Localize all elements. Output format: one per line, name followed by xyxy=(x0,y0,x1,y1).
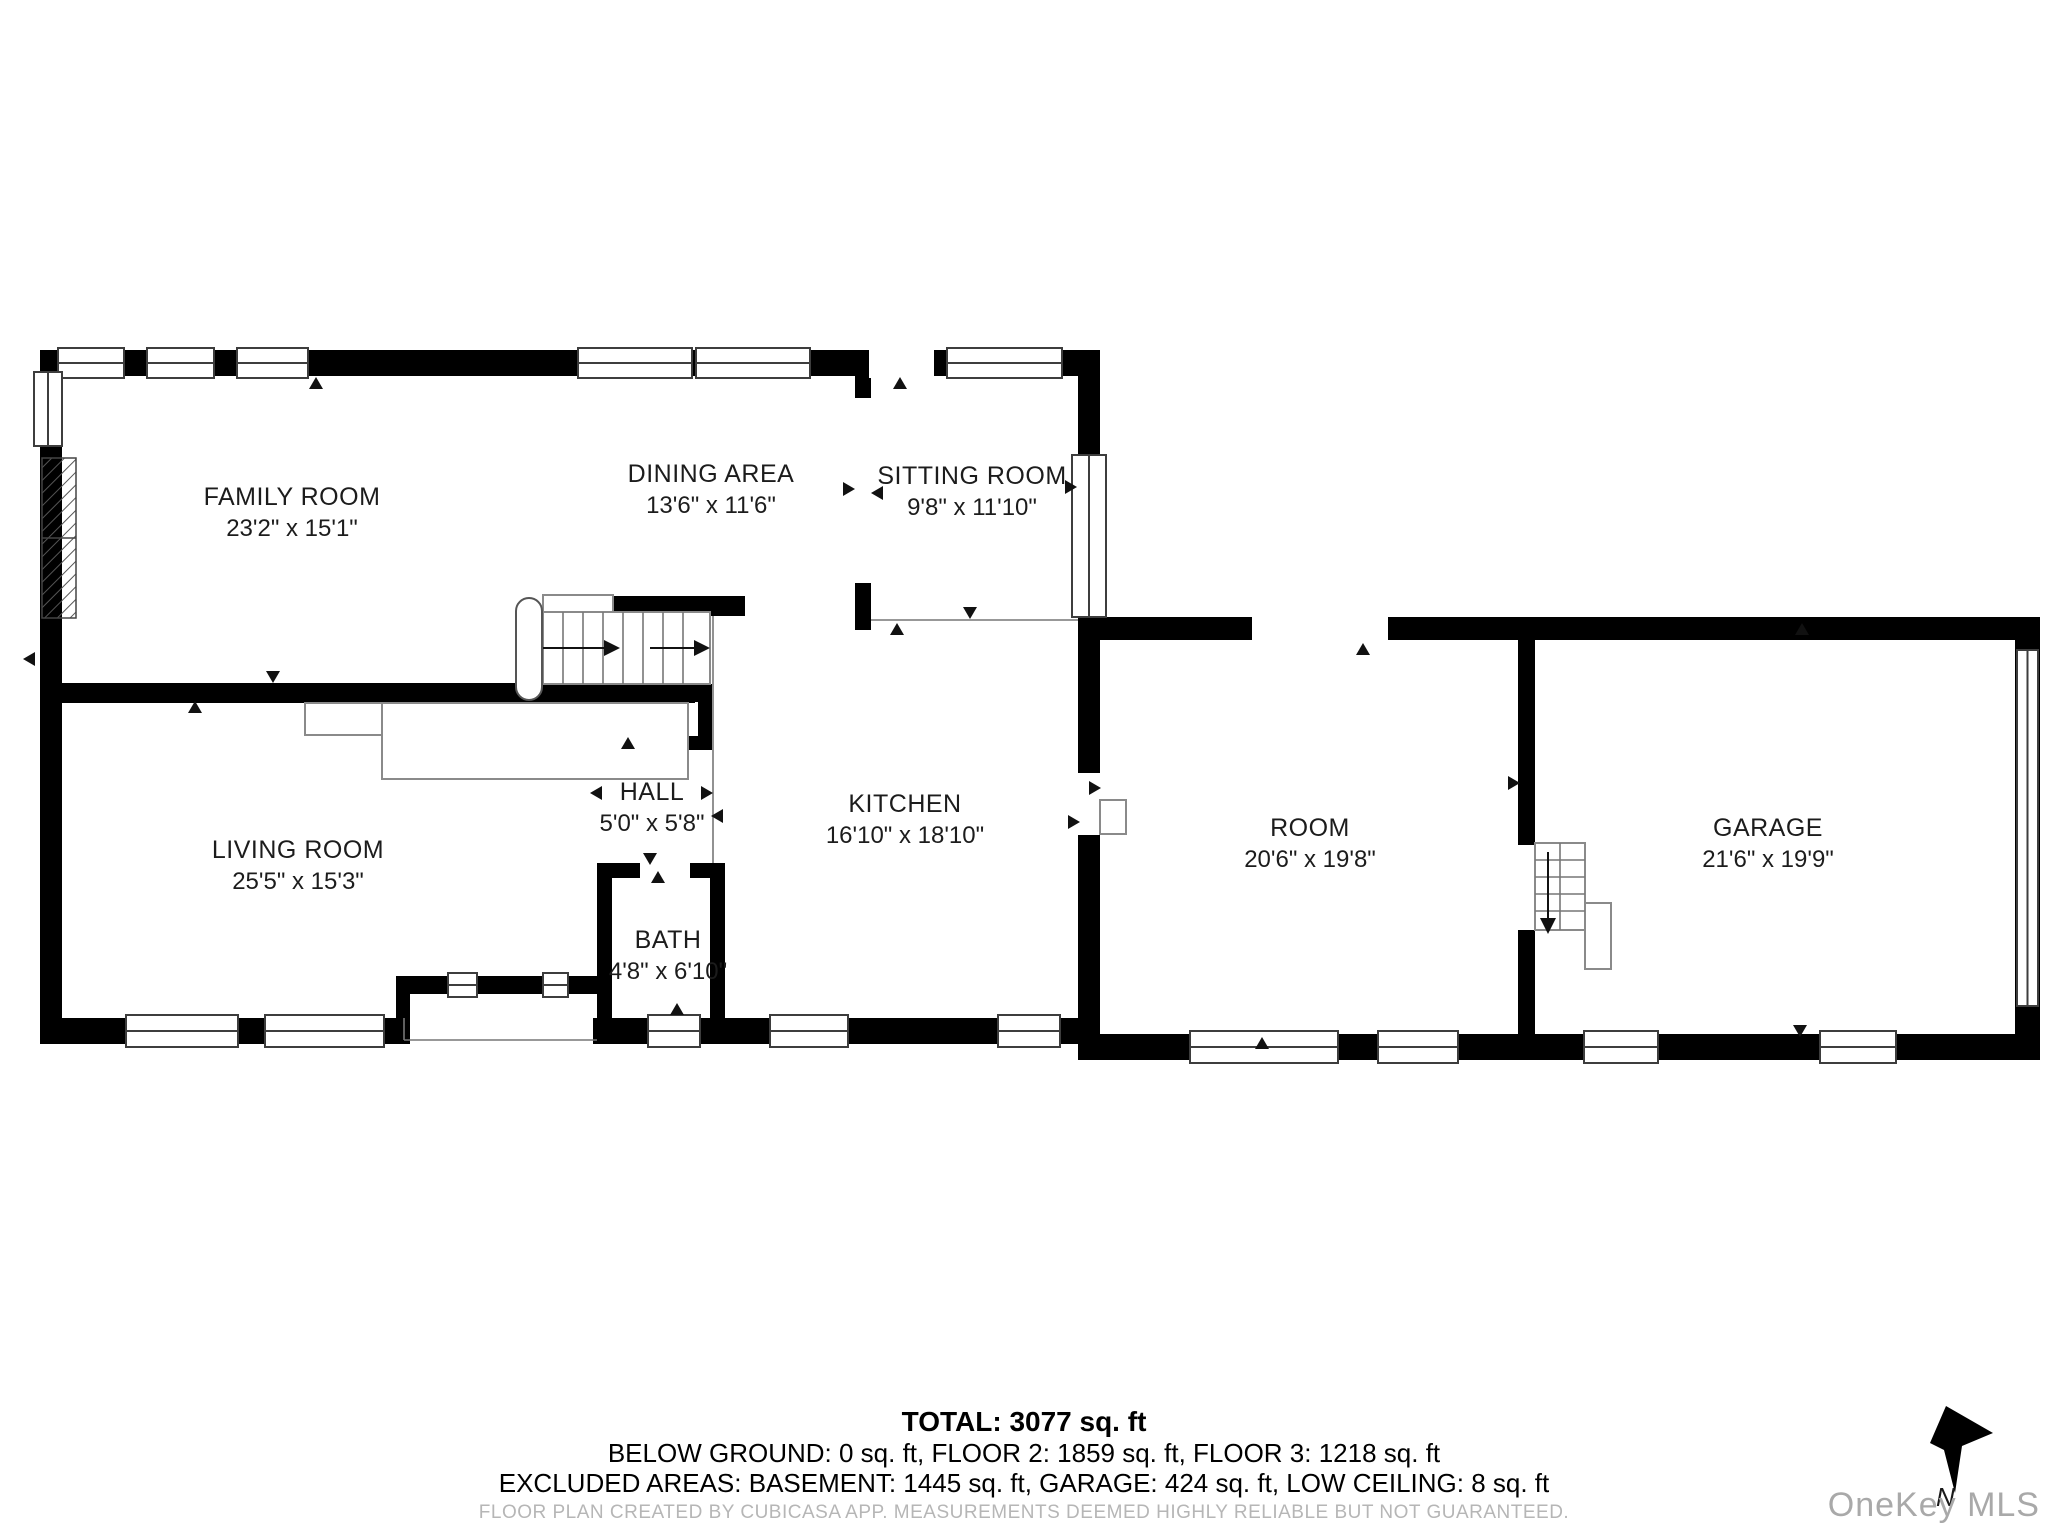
disclaimer-text: FLOOR PLAN CREATED BY CUBICASA APP. MEAS… xyxy=(0,1502,2048,1524)
window-icon xyxy=(648,1015,700,1047)
room-dims-kitchen: 16'10" x 18'10" xyxy=(826,822,984,849)
window-icon xyxy=(770,1015,848,1047)
room-dims-garage: 21'6" x 19'9" xyxy=(1702,846,1834,873)
window-icon xyxy=(947,348,1062,378)
window-icon xyxy=(2017,650,2038,1006)
marker-triangle-icon xyxy=(670,1003,684,1015)
room-dims-sitting-room: 9'8" x 11'10" xyxy=(907,494,1037,521)
marker-triangle-icon xyxy=(963,607,977,619)
marker-triangle-icon xyxy=(843,482,855,496)
room-label-living-room: LIVING ROOM xyxy=(212,836,384,864)
thin-outlines xyxy=(305,595,1611,969)
room-label-kitchen: KITCHEN xyxy=(848,790,961,818)
marker-triangle-icon xyxy=(590,786,602,800)
stair-railing xyxy=(516,598,542,700)
room-label-hall: HALL xyxy=(620,778,685,806)
summary-total: TOTAL: 3077 sq. ft xyxy=(0,1406,2048,1438)
summary-excluded: EXCLUDED AREAS: BASEMENT: 1445 sq. ft, G… xyxy=(0,1468,2048,1499)
marker-triangle-icon xyxy=(23,652,35,666)
marker-triangle-icon xyxy=(643,853,657,865)
summary-floors: BELOW GROUND: 0 sq. ft, FLOOR 2: 1859 sq… xyxy=(0,1438,2048,1469)
room-dims-room: 20'6" x 19'8" xyxy=(1244,846,1376,873)
room-label-dining-area: DINING AREA xyxy=(628,460,795,488)
room-dims-bath: 4'8" x 6'10" xyxy=(609,958,727,985)
marker-triangle-icon xyxy=(701,786,713,800)
room-dims-family-room: 23'2" x 15'1" xyxy=(226,515,358,542)
window-icon xyxy=(1820,1031,1896,1063)
plan-geometry xyxy=(23,348,2040,1063)
window-icon xyxy=(696,348,810,378)
window-icon xyxy=(543,973,568,997)
window-icon xyxy=(126,1015,238,1047)
window-icon xyxy=(147,348,214,378)
marker-triangle-icon xyxy=(1356,643,1370,655)
room-label-bath: BATH xyxy=(635,926,702,954)
marker-triangle-icon xyxy=(893,377,907,389)
floor-plan-drawing: FAMILY ROOM 23'2" x 15'1" DINING AREA 13… xyxy=(0,0,2048,1536)
door-openings xyxy=(869,348,1388,835)
room-dims-hall: 5'0" x 5'8" xyxy=(600,810,705,837)
room-label-sitting-room: SITTING ROOM xyxy=(877,462,1066,490)
room-dims-living-room: 25'5" x 15'3" xyxy=(232,868,364,895)
room-dims-dining-area: 13'6" x 11'6" xyxy=(646,492,776,519)
window-icon xyxy=(58,348,124,378)
window-icon xyxy=(1072,455,1106,617)
fireplace-icon xyxy=(42,458,76,618)
floor-plan-page: FAMILY ROOM 23'2" x 15'1" DINING AREA 13… xyxy=(0,0,2048,1536)
room-label-family-room: FAMILY ROOM xyxy=(204,483,381,511)
onekey-mls-logo: OneKey MLS xyxy=(1828,1486,2040,1525)
window-icon xyxy=(448,973,477,997)
room-label-garage: GARAGE xyxy=(1713,814,1823,842)
marker-triangle-icon xyxy=(651,871,665,883)
window-icon xyxy=(237,348,308,378)
marker-triangle-icon xyxy=(309,377,323,389)
room-label-room: ROOM xyxy=(1270,814,1350,842)
window-icon xyxy=(1378,1031,1458,1063)
window-icon xyxy=(34,372,62,446)
marker-triangle-icon xyxy=(890,623,904,635)
window-icon xyxy=(578,348,692,378)
window-icon xyxy=(265,1015,384,1047)
marker-triangle-icon xyxy=(266,671,280,683)
window-icon xyxy=(998,1015,1060,1047)
window-icon xyxy=(1584,1031,1658,1063)
